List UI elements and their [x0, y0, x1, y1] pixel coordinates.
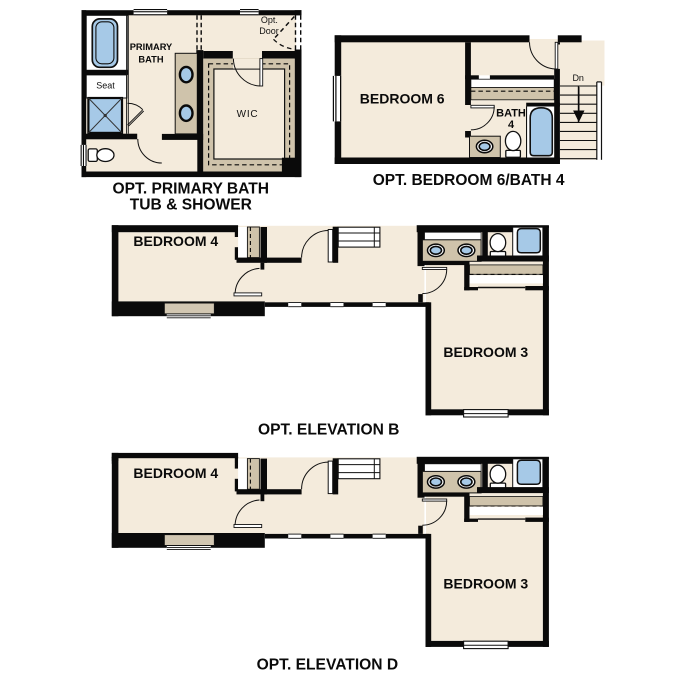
svg-text:OPT. ELEVATION B: OPT. ELEVATION B — [258, 422, 400, 439]
svg-text:BATH: BATH — [496, 108, 526, 120]
svg-text:Dn: Dn — [572, 73, 584, 83]
svg-text:BEDROOM 6: BEDROOM 6 — [360, 91, 445, 107]
svg-text:Seat: Seat — [96, 81, 115, 91]
svg-text:4: 4 — [508, 119, 515, 131]
svg-text:OPT. ELEVATION D: OPT. ELEVATION D — [257, 657, 399, 674]
svg-text:Opt.: Opt. — [261, 15, 278, 25]
svg-text:Door: Door — [259, 26, 279, 36]
svg-text:BATH: BATH — [138, 55, 163, 65]
svg-text:TUB & SHOWER: TUB & SHOWER — [130, 197, 252, 214]
svg-text:BEDROOM 4: BEDROOM 4 — [133, 233, 218, 249]
svg-text:OPT. PRIMARY BATH: OPT. PRIMARY BATH — [113, 180, 270, 197]
svg-text:WIC: WIC — [237, 109, 259, 120]
svg-text:OPT. BEDROOM 6/BATH 4: OPT. BEDROOM 6/BATH 4 — [373, 172, 565, 189]
svg-text:BEDROOM 3: BEDROOM 3 — [443, 344, 528, 360]
svg-text:PRIMARY: PRIMARY — [130, 42, 173, 52]
